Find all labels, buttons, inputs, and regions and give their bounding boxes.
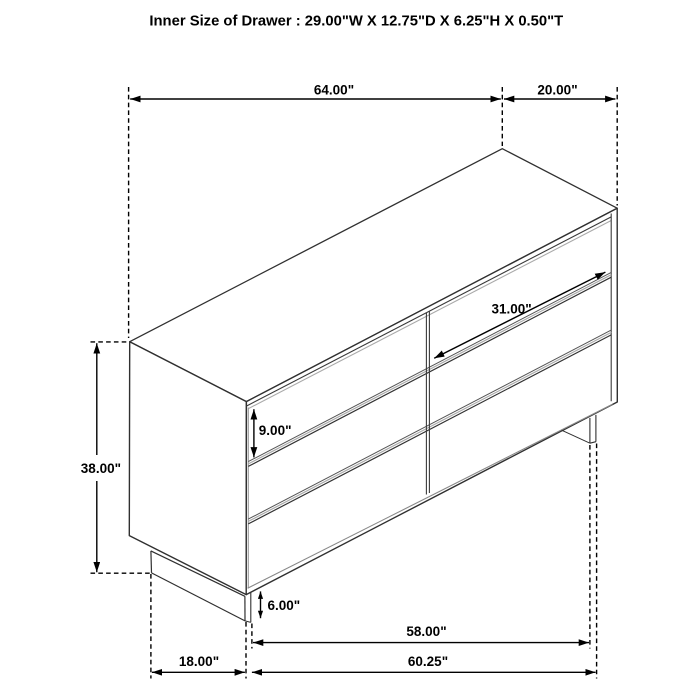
- svg-text:Inner Size of Drawer : 29.00"W: Inner Size of Drawer : 29.00"W X 12.75"D…: [149, 14, 563, 30]
- svg-text:31.00": 31.00": [492, 301, 532, 316]
- svg-text:58.00": 58.00": [406, 624, 446, 639]
- svg-text:38.00": 38.00": [81, 461, 121, 476]
- svg-text:9.00": 9.00": [259, 423, 292, 438]
- svg-text:60.25": 60.25": [408, 654, 448, 669]
- svg-text:18.00": 18.00": [179, 654, 219, 669]
- svg-text:20.00": 20.00": [537, 83, 577, 98]
- svg-text:6.00": 6.00": [268, 598, 301, 613]
- svg-text:64.00": 64.00": [314, 83, 354, 98]
